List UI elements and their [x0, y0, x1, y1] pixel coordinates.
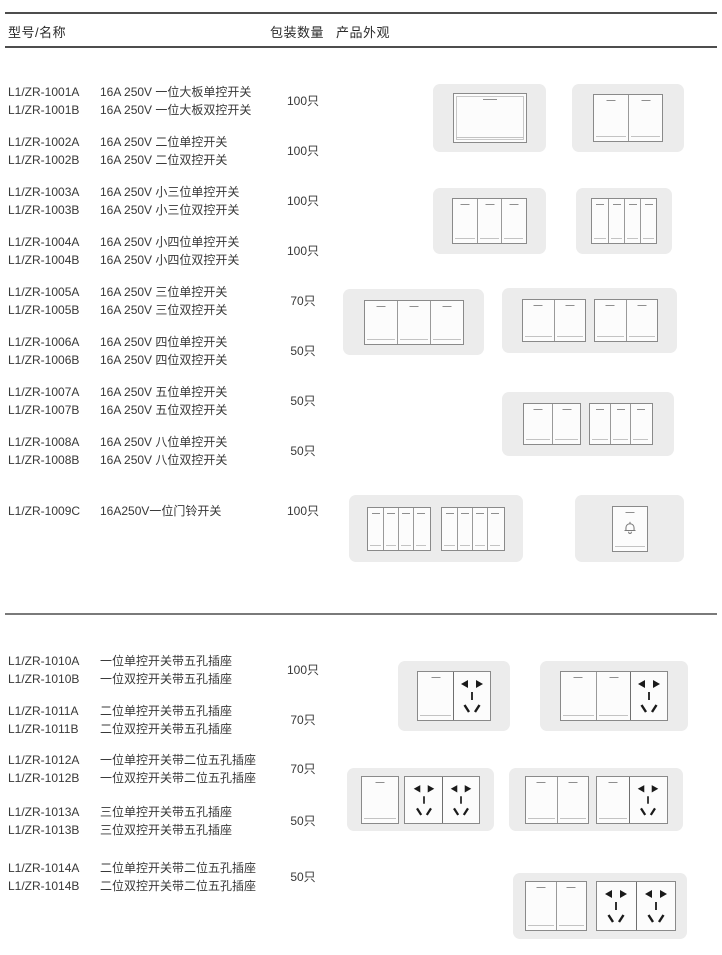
rocker-switch-icon	[442, 508, 457, 550]
model-code: L1/ZR-1009C	[8, 502, 100, 520]
product-image-1011	[540, 661, 688, 731]
rocker-switch-icon	[628, 95, 662, 141]
product-name: 一位双控开关带二位五孔插座	[100, 769, 256, 787]
rocker-switch-icon	[596, 672, 631, 720]
table-row: L1/ZR-1001A16A 250V 一位大板单控开关 L1/ZR-1001B…	[8, 83, 251, 119]
rocker-switch-icon	[454, 94, 526, 142]
rocker-switch-icon	[453, 199, 477, 243]
product-name: 16A 250V 二位单控开关	[100, 133, 227, 151]
table-row: L1/ZR-1006A16A 250V 四位单控开关 L1/ZR-1006B16…	[8, 333, 227, 369]
product-name: 三位单控开关带五孔插座	[100, 803, 232, 821]
product-image-1014	[513, 873, 687, 939]
model-code: L1/ZR-1003A	[8, 183, 100, 201]
qty-value: 70只	[272, 760, 334, 778]
table-row: L1/ZR-1011A二位单控开关带五孔插座 L1/ZR-1011B二位双控开关…	[8, 702, 232, 738]
product-name: 16A 250V 三位双控开关	[100, 301, 227, 319]
rocker-switch-icon	[640, 199, 656, 243]
product-name: 16A 250V 一位大板单控开关	[100, 83, 251, 101]
table-row: L1/ZR-1005A16A 250V 三位单控开关 L1/ZR-1005B16…	[8, 283, 227, 319]
rocker-switch-icon	[398, 508, 413, 550]
model-code: L1/ZR-1012B	[8, 769, 100, 787]
rocker-switch-icon	[430, 301, 463, 344]
product-name: 16A 250V 八位单控开关	[100, 433, 227, 451]
table-row: L1/ZR-1007A16A 250V 五位单控开关 L1/ZR-1007B16…	[8, 383, 227, 419]
qty-value: 50只	[272, 392, 334, 410]
table-row: L1/ZR-1008A16A 250V 八位单控开关 L1/ZR-1008B16…	[8, 433, 227, 469]
rocker-switch-icon	[418, 672, 453, 720]
model-code: L1/ZR-1002B	[8, 151, 100, 169]
table-row: L1/ZR-1013A三位单控开关带五孔插座 L1/ZR-1013B三位双控开关…	[8, 803, 232, 839]
model-code: L1/ZR-1003B	[8, 201, 100, 219]
product-image-1008	[349, 495, 523, 562]
model-code: L1/ZR-1014B	[8, 877, 100, 895]
product-name: 一位单控开关带五孔插座	[100, 652, 232, 670]
qty-value: 100只	[272, 242, 334, 260]
rocker-switch-icon	[477, 199, 501, 243]
product-name: 16A 250V 二位双控开关	[100, 151, 227, 169]
product-name: 二位单控开关带二位五孔插座	[100, 859, 256, 877]
rocker-switch-icon	[362, 777, 398, 823]
table-row: L1/ZR-1010A一位单控开关带五孔插座 L1/ZR-1010B一位双控开关…	[8, 652, 232, 688]
rocker-switch-icon	[457, 508, 472, 550]
five-hole-socket-icon	[629, 777, 667, 823]
model-code: L1/ZR-1001A	[8, 83, 100, 101]
model-code: L1/ZR-1011B	[8, 720, 100, 738]
rocker-switch-icon	[557, 777, 588, 823]
column-header-model: 型号/名称	[8, 22, 66, 41]
model-code: L1/ZR-1013A	[8, 803, 100, 821]
qty-value: 100只	[272, 142, 334, 160]
table-row: L1/ZR-1003A16A 250V 小三位单控开关 L1/ZR-1003B1…	[8, 183, 239, 219]
rocker-switch-icon	[608, 199, 624, 243]
doorbell-button	[613, 507, 647, 551]
model-code: L1/ZR-1014A	[8, 859, 100, 877]
model-code: L1/ZR-1006B	[8, 351, 100, 369]
product-image-1005	[343, 289, 484, 355]
bell-icon	[621, 520, 639, 538]
table-row: L1/ZR-1014A二位单控开关带二位五孔插座 L1/ZR-1014B二位双控…	[8, 859, 256, 895]
product-name: 三位双控开关带五孔插座	[100, 821, 232, 839]
product-image-1004	[576, 188, 672, 254]
rocker-switch-icon	[626, 300, 657, 341]
model-code: L1/ZR-1008B	[8, 451, 100, 469]
rocker-switch-icon	[413, 508, 428, 550]
model-code: L1/ZR-1005A	[8, 283, 100, 301]
product-name: 16A 250V 小三位单控开关	[100, 183, 239, 201]
product-name: 16A 250V 五位单控开关	[100, 383, 227, 401]
rocker-switch-icon	[556, 882, 586, 930]
rocker-switch-icon	[595, 300, 626, 341]
rocker-switch-icon	[524, 404, 552, 444]
rocker-switch-icon	[561, 672, 596, 720]
model-code: L1/ZR-1012A	[8, 751, 100, 769]
product-image-1009	[575, 495, 684, 562]
five-hole-socket-icon	[442, 777, 479, 823]
qty-value: 100只	[272, 192, 334, 210]
rocker-switch-icon	[365, 301, 398, 344]
qty-value: 100只	[272, 661, 334, 679]
rocker-switch-icon	[526, 882, 556, 930]
table-row: L1/ZR-1012A一位单控开关带二位五孔插座 L1/ZR-1012B一位双控…	[8, 751, 256, 787]
product-image-1012	[347, 768, 494, 831]
five-hole-socket-icon	[597, 882, 636, 930]
product-image-1002	[572, 84, 684, 152]
product-image-1006	[502, 288, 677, 353]
model-code: L1/ZR-1010A	[8, 652, 100, 670]
product-name: 16A 250V 四位单控开关	[100, 333, 227, 351]
five-hole-socket-icon	[636, 882, 675, 930]
rocker-switch-icon	[594, 95, 628, 141]
product-name: 一位单控开关带二位五孔插座	[100, 751, 256, 769]
qty-value: 50只	[272, 812, 334, 830]
model-code: L1/ZR-1007B	[8, 401, 100, 419]
rocker-switch-icon	[501, 199, 525, 243]
five-hole-socket-icon	[630, 672, 667, 720]
rocker-switch-icon	[630, 404, 650, 444]
product-name: 二位双控开关带五孔插座	[100, 720, 232, 738]
rocker-switch-icon	[590, 404, 610, 444]
product-name: 16A 250V 小四位双控开关	[100, 251, 239, 269]
rocker-switch-icon	[554, 300, 585, 341]
rocker-switch-icon	[610, 404, 630, 444]
header-top-rule	[5, 12, 717, 14]
rocker-switch-icon	[397, 301, 430, 344]
rocker-switch-icon	[597, 777, 629, 823]
header-bottom-rule	[5, 46, 717, 48]
qty-value: 100只	[272, 92, 334, 110]
qty-value: 50只	[272, 868, 334, 886]
model-code: L1/ZR-1004B	[8, 251, 100, 269]
qty-value: 70只	[272, 711, 334, 729]
product-name: 16A250V一位门铃开关	[100, 502, 221, 520]
model-code: L1/ZR-1007A	[8, 383, 100, 401]
qty-value: 50只	[272, 342, 334, 360]
section-divider-rule	[5, 613, 717, 615]
model-code: L1/ZR-1006A	[8, 333, 100, 351]
column-header-quantity: 包装数量	[270, 22, 324, 41]
product-name: 16A 250V 小三位双控开关	[100, 201, 239, 219]
rocker-switch-icon	[383, 508, 398, 550]
product-name: 16A 250V 小四位单控开关	[100, 233, 239, 251]
model-code: L1/ZR-1002A	[8, 133, 100, 151]
rocker-switch-icon	[472, 508, 487, 550]
five-hole-socket-icon	[405, 777, 442, 823]
qty-value: 100只	[272, 502, 334, 520]
rocker-switch-icon	[368, 508, 383, 550]
model-code: L1/ZR-1001B	[8, 101, 100, 119]
rocker-switch-icon	[526, 777, 557, 823]
qty-value: 50只	[272, 442, 334, 460]
rocker-switch-icon	[624, 199, 640, 243]
model-code: L1/ZR-1010B	[8, 670, 100, 688]
model-code: L1/ZR-1013B	[8, 821, 100, 839]
model-code: L1/ZR-1004A	[8, 233, 100, 251]
product-image-1007	[502, 392, 674, 456]
product-image-1003	[433, 188, 546, 254]
rocker-switch-icon	[552, 404, 580, 444]
model-code: L1/ZR-1008A	[8, 433, 100, 451]
product-name: 16A 250V 八位双控开关	[100, 451, 227, 469]
qty-value: 70只	[272, 292, 334, 310]
product-image-1001	[433, 84, 546, 152]
model-code: L1/ZR-1005B	[8, 301, 100, 319]
product-name: 16A 250V 五位双控开关	[100, 401, 227, 419]
table-row: L1/ZR-1004A16A 250V 小四位单控开关 L1/ZR-1004B1…	[8, 233, 239, 269]
five-hole-socket-icon	[453, 672, 490, 720]
product-image-1013	[509, 768, 683, 831]
rocker-switch-icon	[523, 300, 554, 341]
product-name: 16A 250V 四位双控开关	[100, 351, 227, 369]
product-name: 二位单控开关带五孔插座	[100, 702, 232, 720]
model-code: L1/ZR-1011A	[8, 702, 100, 720]
product-name: 16A 250V 三位单控开关	[100, 283, 227, 301]
product-name: 一位双控开关带五孔插座	[100, 670, 232, 688]
column-header-appearance: 产品外观	[336, 22, 390, 41]
rocker-switch-icon	[487, 508, 502, 550]
product-image-1010	[398, 661, 510, 731]
catalog-page: 型号/名称 包装数量 产品外观 L1/ZR-1001A16A 250V 一位大板…	[0, 0, 722, 955]
table-row: L1/ZR-1009C16A250V一位门铃开关	[8, 502, 221, 520]
product-name: 二位双控开关带二位五孔插座	[100, 877, 256, 895]
rocker-switch-icon	[592, 199, 608, 243]
product-name: 16A 250V 一位大板双控开关	[100, 101, 251, 119]
table-row: L1/ZR-1002A16A 250V 二位单控开关 L1/ZR-1002B16…	[8, 133, 227, 169]
